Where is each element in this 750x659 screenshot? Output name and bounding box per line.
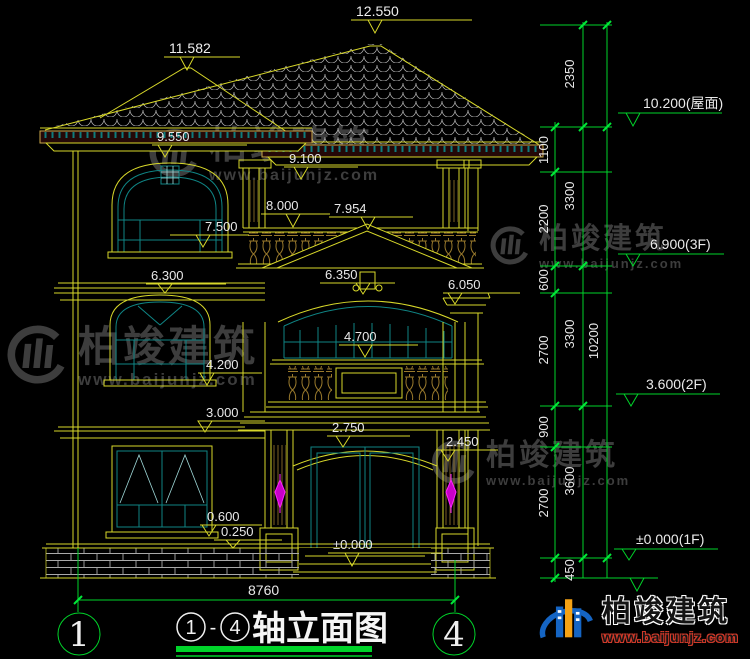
- elevation-label: 8.000: [266, 198, 299, 213]
- title-underline-thin: [176, 655, 372, 657]
- marker-ridge-main: 12.550: [351, 3, 472, 33]
- dim-value: 2700: [536, 489, 551, 518]
- roof: [40, 44, 543, 165]
- level-2f: 3.600(2F): [616, 376, 720, 406]
- elevation-label: 3.000: [206, 405, 239, 420]
- elevation-label: 6.050: [448, 277, 481, 292]
- dim-value: 2700: [536, 336, 551, 365]
- title-underline: [176, 646, 372, 652]
- brand-logo: 柏竣建筑 www.baijunjz.com: [536, 586, 748, 656]
- dim-value: 600: [536, 269, 551, 291]
- marker-sill-3f: 7.500: [170, 219, 249, 247]
- dim-value: 2200: [536, 205, 551, 234]
- title-text: 轴立面图: [252, 610, 388, 648]
- title-axis-start: 1: [185, 617, 196, 639]
- axis-number-right: 4: [443, 615, 465, 655]
- drawing-title: 1 - 4 轴立面图: [176, 610, 388, 657]
- brand-logo-icon: [536, 590, 594, 652]
- plinth: [40, 544, 496, 578]
- marker-sill-2f: 4.200: [198, 357, 262, 385]
- elevation-label: 2.750: [332, 420, 365, 435]
- elevation-label: 0.600: [207, 509, 240, 524]
- middle-bay: [236, 160, 490, 574]
- brand-url: www.baijunjz.com: [602, 629, 739, 646]
- marker-bay-arch: 6.350: [320, 267, 395, 294]
- dim-value-total: 10200: [586, 323, 601, 359]
- level-1f: ±0.000(1F): [614, 531, 718, 560]
- marker-band-3f: 6.300: [146, 268, 226, 293]
- elevation-label: 2.450: [446, 434, 479, 449]
- level-label: ±0.000(1F): [636, 531, 704, 547]
- floor-levels: 10.200(屋面) 6.900(3F) 3.600(2F) ±0.000(1F…: [614, 95, 724, 591]
- elevation-label: 0.250: [221, 524, 254, 539]
- cad-elevation-screenshot: 柏竣建筑 www.baijunjz.com 柏竣建筑 www.baijunjz.…: [0, 0, 750, 659]
- level-label: 3.600(2F): [646, 376, 707, 392]
- elevation-label: 11.582: [169, 40, 211, 56]
- dim-value: 900: [536, 416, 551, 438]
- elevation-label: 7.500: [205, 219, 238, 234]
- elevation-label: 7.954: [334, 201, 367, 216]
- level-3f: 6.900(3F): [618, 236, 724, 266]
- elevation-label: 4.200: [206, 357, 239, 372]
- elevation-drawing: 12.550 11.582 9.550 9.100 8.000 7.954 7.…: [0, 0, 750, 659]
- marker-cornice-right: 6.050: [443, 277, 520, 304]
- marker-entry-spring: 2.450: [436, 434, 498, 461]
- dim-value: 3300: [562, 182, 577, 211]
- level-roof: 10.200(屋面): [618, 95, 723, 126]
- title-separator: -: [210, 617, 217, 639]
- elevation-label: 6.300: [151, 268, 184, 283]
- dimension-chain: 1100 2200 600 2700 900 2700 450 2350 330…: [536, 21, 658, 582]
- elevation-label: 6.350: [325, 267, 358, 282]
- marker-bay-sill: 4.700: [339, 329, 418, 357]
- dim-value: 450: [562, 559, 577, 581]
- level-label: 6.900(3F): [650, 236, 711, 252]
- marker-balustrade-top: 8.000: [261, 198, 330, 227]
- elevation-label: 9.100: [289, 151, 322, 166]
- brand-name: 柏竣建筑: [602, 597, 739, 629]
- dim-value: 3300: [562, 320, 577, 349]
- dim-value: 1100: [536, 136, 551, 164]
- title-axis-end: 4: [229, 617, 240, 639]
- marker-ridge-left: 11.582: [164, 40, 240, 70]
- axis-number-left: 1: [68, 615, 90, 655]
- elevation-label: 9.550: [157, 129, 190, 144]
- dim-value: 3600: [562, 467, 577, 496]
- marker-pediment-apex: 7.954: [329, 201, 413, 229]
- level-label: 10.200(屋面): [643, 95, 723, 111]
- elevation-label: ±0.000: [333, 537, 373, 552]
- width-dimension: 8760: [248, 582, 279, 598]
- dim-value: 2350: [562, 60, 577, 89]
- left-wing: [54, 151, 265, 548]
- elevation-label: 4.700: [344, 329, 377, 344]
- elevation-label: 12.550: [356, 3, 399, 19]
